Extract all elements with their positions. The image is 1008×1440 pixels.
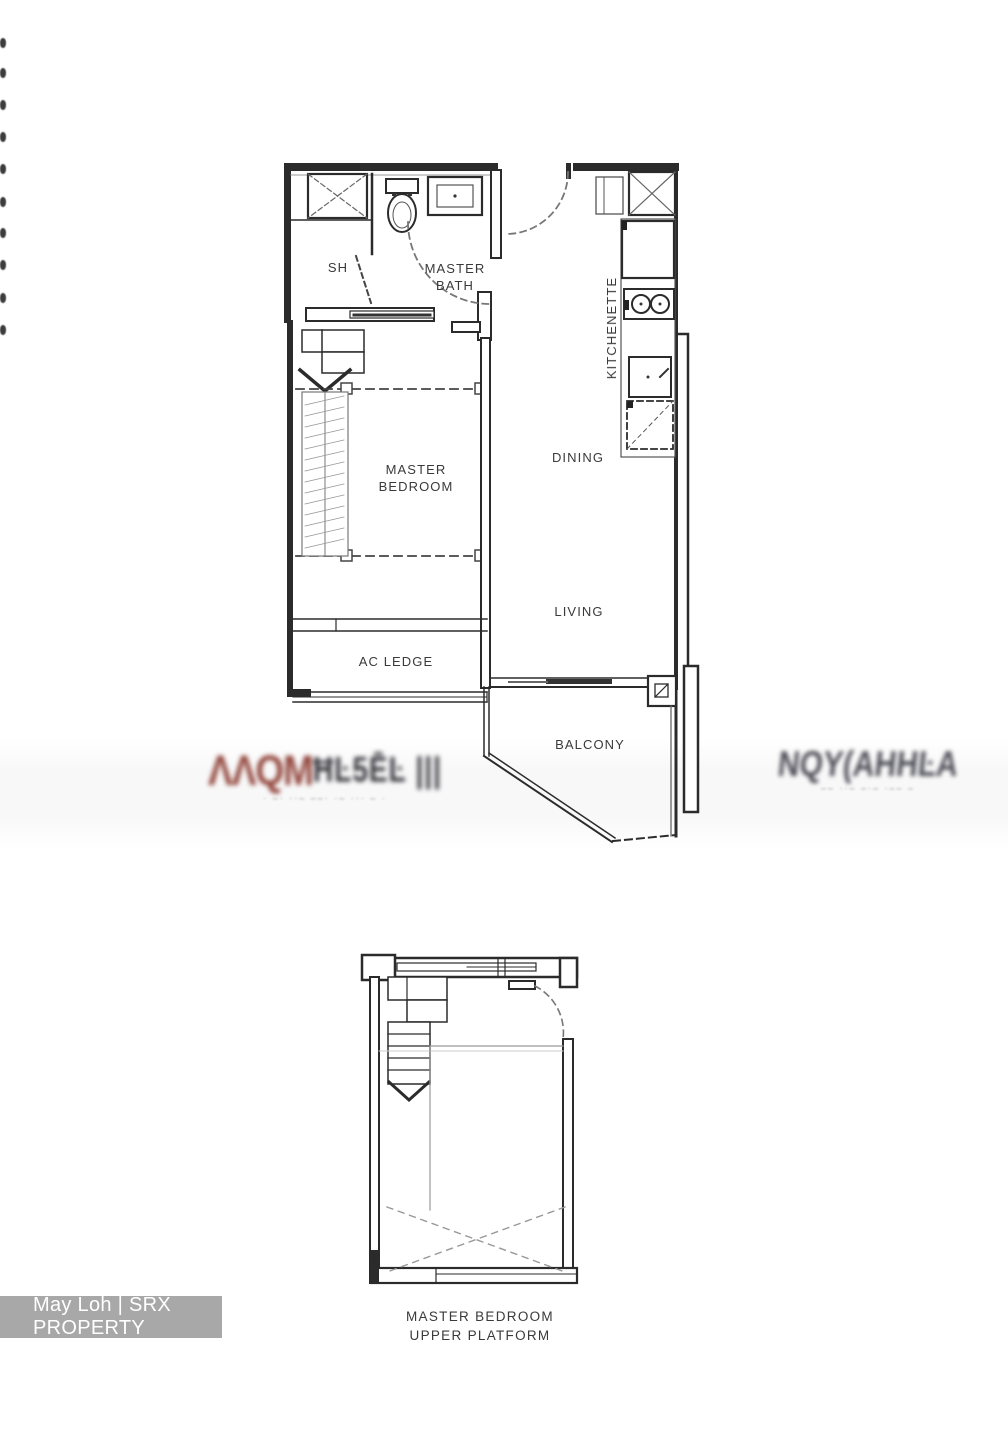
basin-icon <box>428 177 482 215</box>
watermark-right-subtext: –– ··– –·– ·–– – <box>768 783 968 793</box>
washer-provision-icon <box>627 401 673 449</box>
lower-floor-plan <box>362 955 577 1283</box>
room-label-master-bath-line1: MASTER <box>425 260 486 277</box>
lower-plan-title-line2: UPPER PLATFORM <box>406 1326 554 1345</box>
room-label-master-bedroom: MASTER BEDROOM <box>379 461 454 495</box>
bedroom-right-wall <box>481 338 490 688</box>
door-arc-icon <box>535 986 563 1039</box>
entrance-door-arc-icon <box>506 172 568 234</box>
vanity-counter <box>306 308 434 321</box>
shower-tray-icon <box>308 174 367 218</box>
room-label-balcony: BALCONY <box>555 737 625 753</box>
watermark-left-red-text: ΛΛQM <box>208 747 313 795</box>
lower-plan-title: MASTER BEDROOM UPPER PLATFORM <box>406 1307 554 1345</box>
hob-icon <box>624 289 674 319</box>
room-label-master-bath: MASTER BATH <box>425 260 486 294</box>
room-label-living: LIVING <box>554 604 603 620</box>
right-wall-outer-line <box>678 334 688 667</box>
watermark-left-subtext: · –· ··– ––· ·– ··· – · <box>208 793 442 803</box>
balcony-column-box <box>648 676 676 706</box>
upper-platform-walls <box>362 955 577 1283</box>
ac-box-icon <box>629 172 675 215</box>
balcony-walls <box>484 687 676 842</box>
room-label-master-bedroom-line2: BEDROOM <box>379 478 454 495</box>
room-label-ac-ledge: AC LEDGE <box>359 654 434 670</box>
watermark-right: NQY(AHHĿA –– ··– –·– ·–– – <box>768 748 968 793</box>
balcony-outer-wall <box>684 666 698 812</box>
stairs-icon <box>388 977 447 1100</box>
shower-door-line <box>356 256 371 303</box>
fridge-icon <box>622 221 674 278</box>
room-label-kitchenette: KITCHENETTE <box>604 277 620 379</box>
floorplan-drawing <box>0 0 1008 1440</box>
floorplan-page: SH MASTER BATH KITCHENETTE MASTER BEDROO… <box>0 0 1008 1440</box>
watermark-right-logo: NQY(AHHĿA <box>768 748 968 782</box>
wardrobe-icon <box>302 392 348 556</box>
void-cross-icon <box>387 1207 565 1272</box>
agent-credit-bar: May Loh | SRX PROPERTY <box>0 1296 222 1338</box>
sink-icon <box>629 357 671 397</box>
watermark-left: ΛΛQMĦĿ5ĒĿ ||| · –· ··– ––· ·– ··· – · <box>208 750 442 803</box>
watermark-left-logo: ΛΛQMĦĿ5ĒĿ ||| <box>208 750 442 792</box>
watermark-right-text: NQY(AHHĿA <box>776 745 960 786</box>
room-label-dining: DINING <box>552 450 604 466</box>
toilet-icon <box>386 179 418 232</box>
bath-right-wall <box>491 170 501 258</box>
room-label-sh: SH <box>328 260 348 276</box>
bath-door-stub <box>452 322 480 332</box>
room-label-master-bedroom-line1: MASTER <box>379 461 454 478</box>
watermark-left-dark-text: ĦĿ5ĒĿ ||| <box>313 750 442 790</box>
stairs-icon <box>300 330 364 391</box>
room-label-master-bath-line2: BATH <box>425 277 486 294</box>
lower-plan-title-line1: MASTER BEDROOM <box>406 1307 554 1326</box>
cabinet-icon <box>596 177 623 214</box>
door-stub <box>509 981 535 989</box>
agent-credit-text: May Loh | SRX PROPERTY <box>33 1294 222 1340</box>
bathroom <box>291 170 501 340</box>
